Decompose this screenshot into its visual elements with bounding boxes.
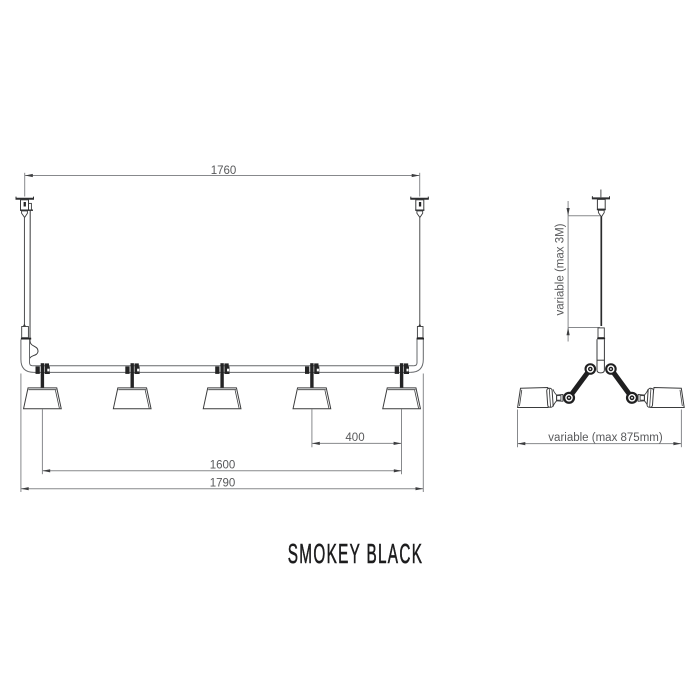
svg-text:variable (max 875mm): variable (max 875mm)	[548, 432, 663, 444]
svg-text:variable (max 3M): variable (max 3M)	[555, 223, 567, 315]
svg-text:1790: 1790	[210, 477, 236, 489]
svg-text:1600: 1600	[210, 459, 236, 471]
svg-text:1760: 1760	[211, 165, 237, 177]
svg-text:400: 400	[345, 432, 364, 444]
svg-text:SMOKEY BLACK: SMOKEY BLACK	[288, 538, 423, 569]
